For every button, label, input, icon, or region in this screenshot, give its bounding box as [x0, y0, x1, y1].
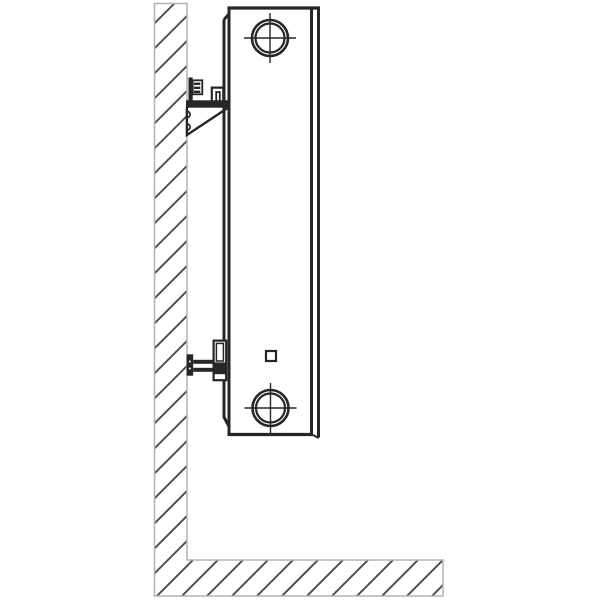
clip-tooth [194, 83, 200, 85]
diagram-page [0, 0, 600, 600]
radiator-panel [224, 7, 320, 439]
support-rod-lower [193, 368, 214, 372]
vent-square [266, 351, 276, 361]
anchor-pin-hole [189, 361, 191, 363]
holder-clamp [214, 362, 227, 374]
clip-tooth [194, 91, 200, 93]
radiator-mounting-diagram [0, 0, 600, 600]
clip-tooth [194, 87, 200, 89]
support-rod-upper [193, 360, 214, 364]
wall-anchor [187, 354, 194, 375]
anchor-pin-hole [189, 368, 191, 370]
radiator-body-fill [224, 8, 319, 436]
